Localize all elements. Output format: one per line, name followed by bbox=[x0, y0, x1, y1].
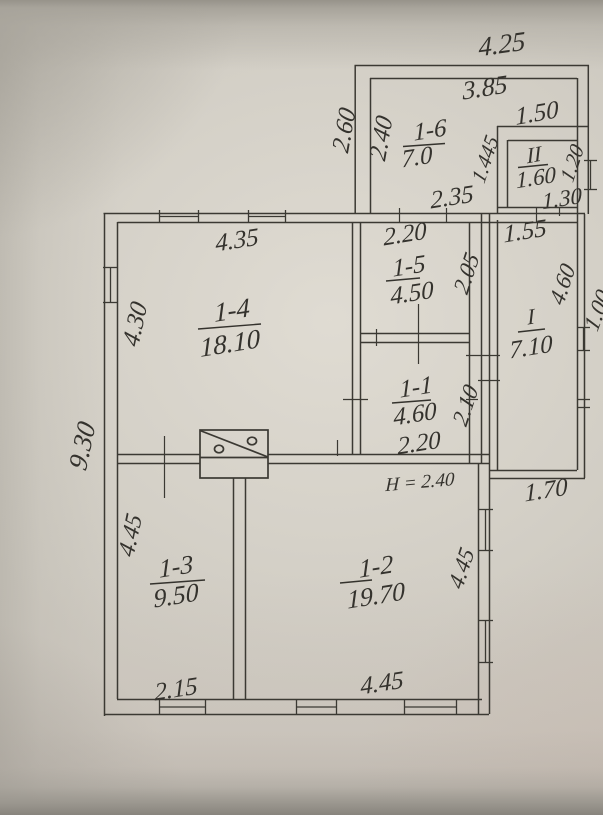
svg-text:4.35: 4.35 bbox=[215, 224, 259, 258]
svg-text:4.50: 4.50 bbox=[390, 276, 435, 310]
svg-text:1-4: 1-4 bbox=[214, 292, 251, 328]
svg-text:Н = 2.40: Н = 2.40 bbox=[384, 469, 455, 496]
svg-text:2.35: 2.35 bbox=[430, 181, 474, 215]
svg-text:I: I bbox=[526, 303, 537, 330]
svg-text:2.20: 2.20 bbox=[397, 426, 442, 460]
svg-text:1.55: 1.55 bbox=[503, 215, 547, 249]
svg-text:9.50: 9.50 bbox=[153, 577, 199, 613]
svg-text:9.30: 9.30 bbox=[63, 417, 101, 473]
svg-text:1.50: 1.50 bbox=[515, 96, 560, 131]
svg-text:2.15: 2.15 bbox=[154, 673, 198, 707]
svg-text:1.20: 1.20 bbox=[555, 140, 588, 186]
svg-text:1.70: 1.70 bbox=[524, 473, 569, 507]
svg-text:2.20: 2.20 bbox=[383, 217, 428, 251]
svg-text:7.10: 7.10 bbox=[509, 330, 554, 364]
svg-text:4.45: 4.45 bbox=[443, 543, 479, 592]
svg-text:1.30: 1.30 bbox=[542, 182, 583, 214]
svg-text:2.05: 2.05 bbox=[448, 248, 484, 297]
svg-text:4.60: 4.60 bbox=[544, 259, 580, 309]
svg-text:4.25: 4.25 bbox=[478, 26, 525, 63]
svg-text:3.85: 3.85 bbox=[461, 69, 508, 105]
svg-text:2.60: 2.60 bbox=[328, 104, 362, 155]
svg-text:18.10: 18.10 bbox=[199, 323, 260, 363]
svg-text:4.45: 4.45 bbox=[360, 667, 404, 701]
svg-text:2.10: 2.10 bbox=[447, 380, 483, 430]
svg-text:7.0: 7.0 bbox=[401, 141, 433, 173]
svg-text:4.30: 4.30 bbox=[118, 298, 153, 350]
svg-text:4.60: 4.60 bbox=[393, 397, 438, 431]
svg-text:4.45: 4.45 bbox=[114, 511, 147, 561]
